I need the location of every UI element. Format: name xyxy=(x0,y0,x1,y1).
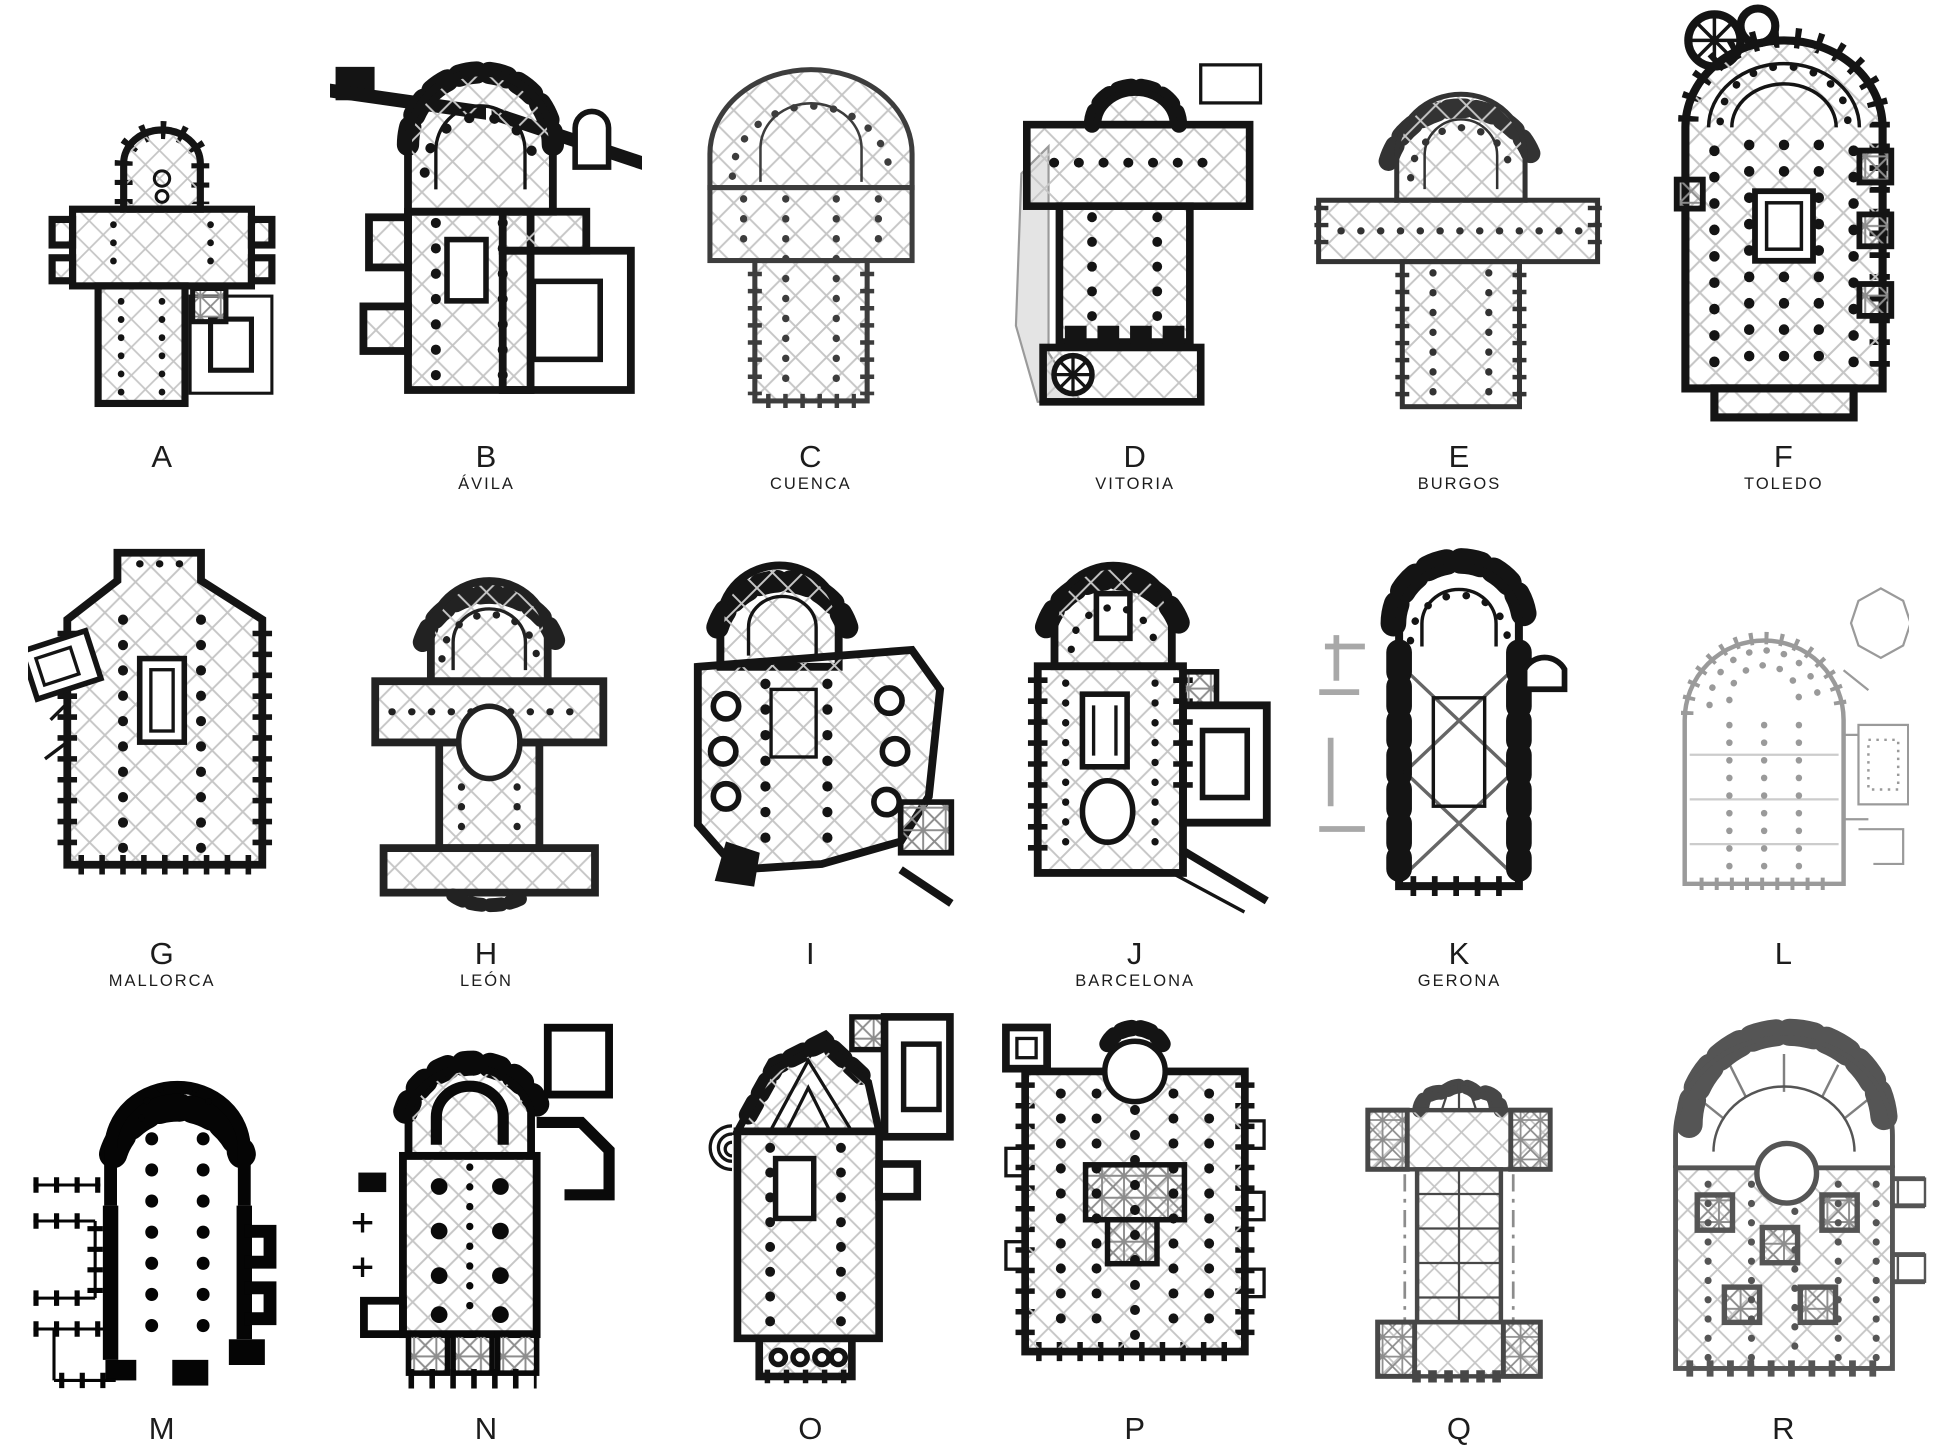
floor-plan-drawing-b xyxy=(327,39,645,429)
floor-plan-drawing-f xyxy=(1668,4,1900,429)
plan-cell-d: D VITORIA xyxy=(973,0,1297,497)
floor-plan-drawing-j xyxy=(998,521,1273,926)
plan-city-name: BARCELONA xyxy=(1075,972,1195,994)
plan-caption-f: F TOLEDO xyxy=(1744,439,1824,497)
plan-cell-n: N xyxy=(324,994,648,1453)
plan-cell-h: H LEÓN xyxy=(324,497,648,994)
plan-caption-k: K GERONA xyxy=(1418,936,1502,994)
plan-letter: Q xyxy=(1447,1411,1472,1447)
figure-grid: A xyxy=(0,0,1946,1453)
plan-city-name: BURGOS xyxy=(1418,475,1502,497)
floor-plan-drawing-o xyxy=(656,1006,966,1401)
plan-cell-k: K GERONA xyxy=(1297,497,1621,994)
plan-caption-b: B ÁVILA xyxy=(458,439,515,497)
plan-letter: G xyxy=(150,936,175,972)
floor-plan-drawing-n xyxy=(329,1011,644,1401)
plan-caption-a: A xyxy=(151,439,173,497)
floor-plan-drawing-i xyxy=(663,526,958,926)
plan-caption-c: C CUENCA xyxy=(770,439,852,497)
plan-city-name: LEÓN xyxy=(460,972,513,994)
plan-caption-e: E BURGOS xyxy=(1418,439,1502,497)
plan-city-name: ÁVILA xyxy=(458,475,515,497)
plan-cell-r: R xyxy=(1622,994,1946,1453)
plan-cell-o: O xyxy=(649,994,973,1453)
plan-caption-j: J BARCELONA xyxy=(1075,936,1195,994)
plan-city-name: CUENCA xyxy=(770,475,852,497)
plan-cell-l: L xyxy=(1622,497,1946,994)
floor-plan-drawing-p xyxy=(1000,1011,1270,1401)
plan-caption-r: R xyxy=(1772,1411,1795,1453)
plan-cell-f: F TOLEDO xyxy=(1622,0,1946,497)
floor-plan-drawing-d xyxy=(998,54,1273,429)
plan-cell-q: Q xyxy=(1297,994,1621,1453)
plan-caption-n: N xyxy=(475,1411,498,1453)
plan-cell-a: A xyxy=(0,0,324,497)
plan-cell-i: I xyxy=(649,497,973,994)
plan-letter: A xyxy=(151,439,173,475)
plan-city-name: VITORIA xyxy=(1095,475,1175,497)
plan-city-name: TOLEDO xyxy=(1744,475,1824,497)
plan-letter: J xyxy=(1127,936,1144,972)
plan-caption-d: D VITORIA xyxy=(1095,439,1175,497)
floor-plan-drawing-c xyxy=(687,64,935,429)
plan-letter: K xyxy=(1449,936,1471,972)
plan-letter: I xyxy=(806,936,816,972)
plan-cell-b: B ÁVILA xyxy=(324,0,648,497)
plan-letter: B xyxy=(476,439,498,475)
floor-plan-drawing-h xyxy=(364,531,609,926)
plan-letter: P xyxy=(1124,1411,1146,1447)
plan-city-name: MALLORCA xyxy=(109,972,216,994)
plan-letter: R xyxy=(1772,1411,1795,1447)
plan-cell-m: M xyxy=(0,994,324,1453)
plan-caption-o: O xyxy=(798,1411,823,1453)
plan-letter: H xyxy=(475,936,498,972)
plan-letter: L xyxy=(1775,936,1793,972)
plan-caption-i: I xyxy=(806,936,816,994)
plan-caption-m: M xyxy=(149,1411,176,1453)
plan-letter: C xyxy=(799,439,822,475)
plan-caption-l: L xyxy=(1775,936,1793,994)
plan-caption-h: H LEÓN xyxy=(460,936,513,994)
plan-caption-q: Q xyxy=(1447,1411,1472,1453)
floor-plan-drawing-k xyxy=(1313,521,1605,926)
floor-plan-drawing-e xyxy=(1312,44,1607,429)
plan-cell-p: P xyxy=(973,994,1297,1453)
plan-caption-p: P xyxy=(1124,1411,1146,1453)
plan-cell-e: E BURGOS xyxy=(1297,0,1621,497)
plan-city-name: GERONA xyxy=(1418,972,1502,994)
plan-letter: O xyxy=(798,1411,823,1447)
floor-plan-drawing-r xyxy=(1638,1016,1930,1401)
plan-cell-c: C CUENCA xyxy=(649,0,973,497)
floor-plan-drawing-a xyxy=(47,119,277,429)
plan-letter: E xyxy=(1449,439,1471,475)
floor-plan-drawing-l xyxy=(1659,571,1909,926)
plan-letter: N xyxy=(475,1411,498,1447)
plan-letter: D xyxy=(1123,439,1146,475)
floor-plan-drawing-g xyxy=(28,536,296,926)
floor-plan-drawing-m xyxy=(22,1041,302,1401)
plan-cell-g: G MALLORCA xyxy=(0,497,324,994)
floor-plan-drawing-q xyxy=(1345,1051,1573,1401)
plan-cell-j: J BARCELONA xyxy=(973,497,1297,994)
plan-letter: F xyxy=(1774,439,1794,475)
plan-letter: M xyxy=(149,1411,176,1447)
plan-caption-g: G MALLORCA xyxy=(109,936,216,994)
